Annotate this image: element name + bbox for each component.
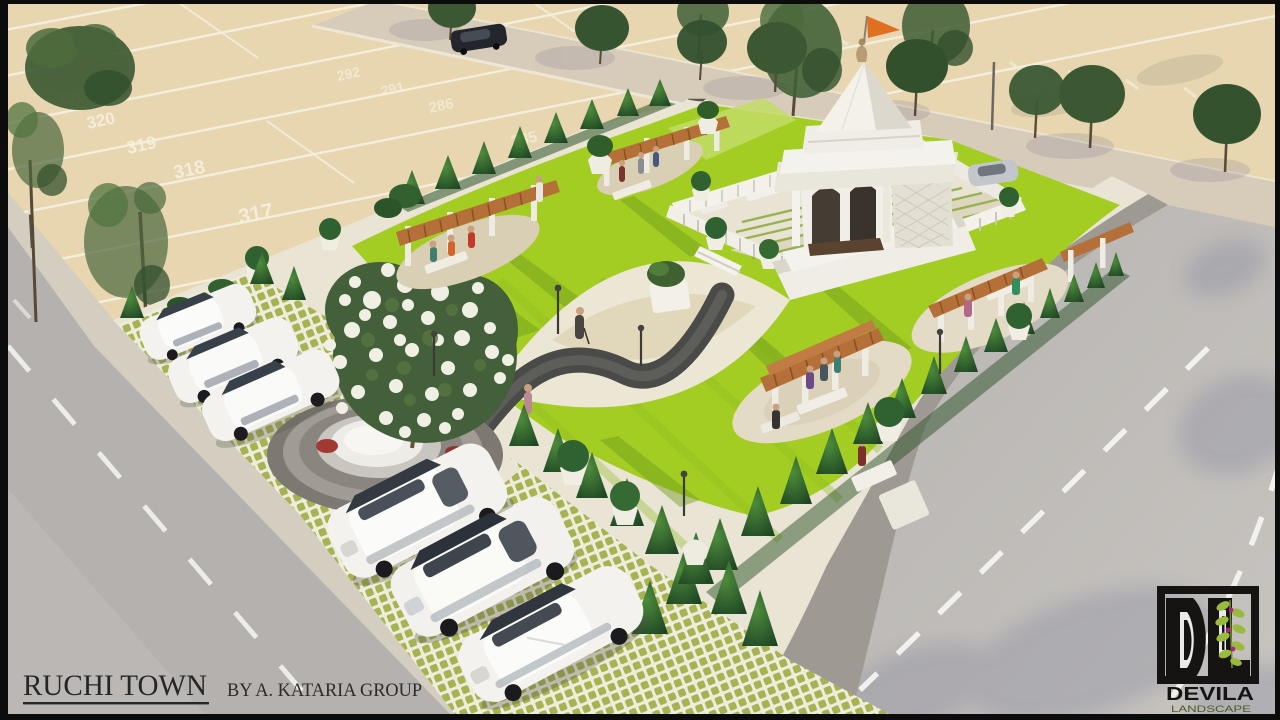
svg-text:DEVILA: DEVILA: [1166, 684, 1254, 704]
svg-text:LANDSCAPE: LANDSCAPE: [1171, 704, 1251, 715]
svg-text:BY A. KATARIA GROUP: BY A. KATARIA GROUP: [227, 680, 422, 701]
svg-text:RUCHI TOWN: RUCHI TOWN: [23, 669, 207, 702]
